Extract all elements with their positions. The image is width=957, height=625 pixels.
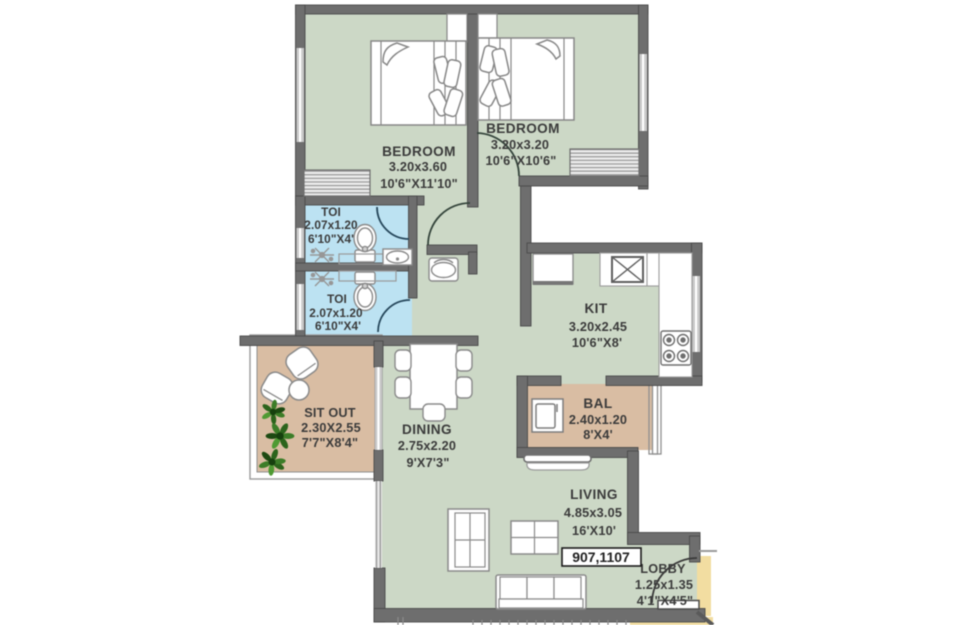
svg-text:10'6"X10'6": 10'6"X10'6" <box>485 154 556 168</box>
svg-text:3.20x3.60: 3.20x3.60 <box>389 160 447 174</box>
svg-text:LOBBY: LOBBY <box>640 562 686 576</box>
svg-text:2.30X2.55: 2.30X2.55 <box>301 421 361 435</box>
svg-text:4'1"X4'5": 4'1"X4'5" <box>637 594 694 608</box>
svg-text:3.20x3.20: 3.20x3.20 <box>491 138 549 152</box>
svg-text:10'6"X8': 10'6"X8' <box>572 336 622 350</box>
svg-text:BEDROOM: BEDROOM <box>382 144 456 159</box>
svg-text:BAL: BAL <box>583 396 612 411</box>
svg-text:TOI: TOI <box>327 292 347 306</box>
svg-text:16'X10': 16'X10' <box>572 524 616 538</box>
svg-text:6'10"X4': 6'10"X4' <box>308 232 354 246</box>
svg-text:SIT OUT: SIT OUT <box>304 406 355 420</box>
svg-text:2.75x2.20: 2.75x2.20 <box>398 439 456 453</box>
svg-text:8'X4': 8'X4' <box>583 428 613 442</box>
svg-text:KIT: KIT <box>584 301 607 316</box>
svg-text:9'X7'3": 9'X7'3" <box>406 456 449 470</box>
svg-text:2.07x1.20: 2.07x1.20 <box>304 218 358 232</box>
svg-text:2.07x1.20: 2.07x1.20 <box>309 306 363 320</box>
svg-text:2.40x1.20: 2.40x1.20 <box>569 413 627 427</box>
svg-text:BEDROOM: BEDROOM <box>486 121 560 136</box>
svg-text:7'7"X8'4": 7'7"X8'4" <box>302 436 359 450</box>
svg-text:1.25x1.35: 1.25x1.35 <box>635 578 693 592</box>
svg-text:6'10"X4': 6'10"X4' <box>315 319 361 333</box>
svg-text:3.20x2.45: 3.20x2.45 <box>569 320 627 334</box>
svg-text:4.85x3.05: 4.85x3.05 <box>564 506 622 520</box>
svg-text:TOI: TOI <box>321 205 341 219</box>
svg-text:907,1107: 907,1107 <box>572 549 630 565</box>
svg-text:DINING: DINING <box>402 422 452 437</box>
svg-text:LIVING: LIVING <box>570 487 618 502</box>
svg-text:10'6"X11'10": 10'6"X11'10" <box>380 177 458 191</box>
